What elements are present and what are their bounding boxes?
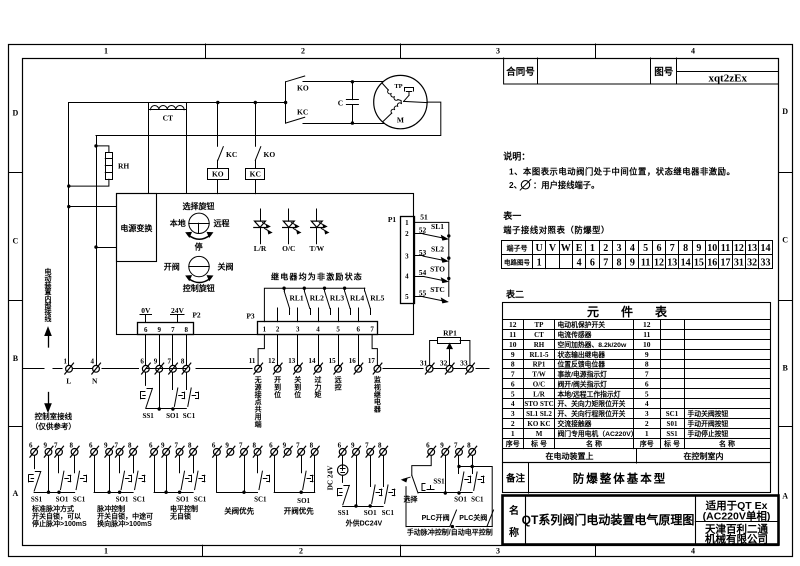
svg-text:8: 8 — [511, 360, 515, 369]
svg-text:11: 11 — [643, 330, 650, 339]
svg-text:停止脉冲>100mS: 停止脉冲>100mS — [32, 519, 87, 528]
svg-text:表一: 表一 — [502, 210, 521, 221]
svg-text:7: 7 — [365, 441, 369, 449]
svg-text:本地/远程工作指示灯: 本地/远程工作指示灯 — [558, 389, 621, 398]
svg-text:电源变换: 电源变换 — [120, 223, 153, 233]
svg-text:防爆整体基本型: 防爆整体基本型 — [573, 472, 668, 486]
svg-text:6: 6 — [338, 441, 342, 449]
svg-text:(AC220V单相): (AC220V单相) — [703, 510, 771, 523]
svg-text:13: 13 — [288, 357, 296, 365]
svg-text:7: 7 — [167, 358, 171, 366]
svg-text:名 称: 名 称 — [719, 439, 735, 448]
svg-text:SO1: SO1 — [297, 497, 310, 505]
svg-text:TP: TP — [394, 83, 402, 90]
svg-text:3: 3 — [496, 47, 500, 56]
svg-text:6: 6 — [149, 441, 153, 449]
svg-text:TP: TP — [535, 321, 545, 329]
svg-text:表二: 表二 — [505, 289, 524, 300]
svg-text:4: 4 — [316, 325, 320, 333]
svg-text:9: 9 — [696, 243, 701, 254]
svg-text:SO1: SO1 — [364, 509, 377, 517]
svg-text:：用户接线端子。: ：用户接线端子。 — [533, 180, 599, 190]
svg-text:6: 6 — [645, 379, 649, 388]
svg-text:过力矩: 过力矩 — [315, 375, 322, 399]
svg-text:KC: KC — [226, 150, 237, 159]
svg-text:合同号: 合同号 — [506, 66, 535, 78]
svg-text:9: 9 — [157, 326, 161, 334]
svg-text:8: 8 — [70, 441, 74, 449]
svg-text:10: 10 — [509, 340, 517, 349]
svg-text:13: 13 — [747, 243, 757, 254]
svg-text:3: 3 — [405, 252, 409, 260]
svg-text:3: 3 — [496, 547, 500, 556]
svg-text:8: 8 — [128, 441, 132, 449]
svg-text:标 号: 标 号 — [530, 439, 547, 448]
svg-text:SC1: SC1 — [133, 495, 146, 503]
svg-text:4: 4 — [630, 243, 635, 254]
svg-text:L/R: L/R — [533, 390, 546, 398]
svg-text:机械有限公司: 机械有限公司 — [705, 533, 768, 546]
svg-text:1: 1 — [64, 358, 68, 366]
svg-text:xqt2zEx: xqt2zEx — [708, 73, 747, 85]
svg-text:SS1: SS1 — [433, 477, 445, 485]
svg-text:继电器均为非激励状态: 继电器均为非激励状态 — [271, 271, 363, 281]
svg-text:关阀: 关阀 — [218, 262, 234, 272]
svg-text:14: 14 — [760, 243, 770, 254]
svg-text:8: 8 — [181, 358, 185, 366]
svg-text:33: 33 — [460, 358, 468, 367]
svg-text:7: 7 — [670, 243, 675, 254]
svg-text:3: 3 — [617, 243, 622, 254]
svg-text:7: 7 — [175, 441, 179, 449]
svg-text:9: 9 — [43, 441, 47, 449]
svg-text:RP1: RP1 — [533, 361, 546, 369]
svg-text:8: 8 — [645, 360, 649, 369]
svg-text:3: 3 — [645, 409, 649, 418]
svg-text:SS1: SS1 — [31, 495, 43, 503]
svg-text:0V: 0V — [141, 306, 151, 315]
svg-text:远控: 远控 — [335, 376, 343, 391]
svg-text:4: 4 — [691, 47, 695, 56]
svg-text:O/C: O/C — [282, 244, 295, 253]
svg-text:7: 7 — [296, 441, 300, 449]
svg-text:P3: P3 — [246, 311, 255, 320]
svg-text:换向脉冲>100mS: 换向脉冲>100mS — [97, 519, 152, 528]
svg-text:7: 7 — [603, 257, 608, 268]
svg-text:元件表: 元件表 — [587, 304, 689, 319]
svg-text:控制室接线: 控制室接线 — [35, 411, 73, 421]
svg-text:5: 5 — [643, 243, 648, 254]
svg-text:7: 7 — [645, 370, 649, 379]
svg-text:在控制室内: 在控制室内 — [684, 451, 724, 461]
svg-text:8: 8 — [185, 326, 189, 334]
svg-text:9: 9 — [351, 441, 355, 449]
svg-text:1: 1 — [511, 429, 515, 438]
svg-text:V: V — [549, 243, 557, 254]
svg-text:12: 12 — [734, 243, 744, 254]
svg-text:称: 称 — [509, 526, 519, 539]
svg-text:16: 16 — [349, 357, 357, 365]
svg-text:2、: 2、 — [509, 180, 522, 190]
svg-text:24V: 24V — [171, 306, 185, 315]
svg-text:名 称: 名 称 — [586, 439, 602, 448]
svg-text:3: 3 — [511, 409, 515, 418]
svg-text:开关自锁，中途可: 开关自锁，中途可 — [97, 512, 153, 521]
svg-text:9: 9 — [104, 441, 108, 449]
svg-text:6: 6 — [269, 441, 273, 449]
svg-text:SC1: SC1 — [183, 412, 196, 420]
svg-text:6: 6 — [212, 441, 216, 449]
svg-text:状态输出继电器: 状态输出继电器 — [558, 350, 606, 359]
svg-text:标 号: 标 号 — [663, 439, 680, 448]
svg-text:STO STC: STO STC — [524, 400, 553, 408]
svg-text:脉冲控制: 脉冲控制 — [96, 504, 125, 513]
svg-text:RL4: RL4 — [350, 293, 364, 302]
svg-text:开、关向力矩限位开关: 开、关向力矩限位开关 — [558, 399, 626, 408]
svg-text:交流接触器: 交流接触器 — [558, 419, 592, 428]
svg-text:6: 6 — [89, 441, 93, 449]
svg-text:P2: P2 — [192, 311, 201, 320]
svg-text:标准脉冲方式: 标准脉冲方式 — [31, 504, 74, 513]
svg-text:8: 8 — [467, 441, 471, 449]
svg-text:SC1: SC1 — [666, 410, 679, 418]
svg-text:S01: S01 — [667, 420, 678, 428]
svg-text:9: 9 — [161, 441, 165, 449]
svg-text:7: 7 — [239, 441, 243, 449]
svg-text:PLC关阀: PLC关阀 — [459, 513, 487, 522]
svg-text:9: 9 — [225, 441, 229, 449]
svg-text:开到位: 开到位 — [274, 376, 281, 399]
svg-text:RL2: RL2 — [310, 293, 324, 302]
svg-text:备注: 备注 — [505, 473, 526, 485]
svg-text:17: 17 — [368, 357, 376, 365]
svg-text:8: 8 — [188, 441, 192, 449]
svg-text:U: U — [536, 243, 543, 254]
svg-text:7: 7 — [115, 441, 119, 449]
svg-text:SL1: SL1 — [431, 222, 444, 231]
svg-text:端子接线对照表（防爆型）: 端子接线对照表（防爆型） — [503, 225, 610, 235]
svg-text:SL2: SL2 — [431, 244, 444, 253]
svg-text:1: 1 — [537, 257, 542, 268]
svg-text:4: 4 — [405, 273, 409, 281]
svg-text:关到位: 关到位 — [294, 375, 301, 399]
svg-text:D: D — [13, 109, 19, 118]
svg-text:名: 名 — [509, 504, 519, 517]
svg-text:L: L — [66, 377, 71, 386]
svg-text:53: 53 — [419, 248, 427, 257]
svg-text:7: 7 — [171, 326, 175, 334]
svg-text:T/W: T/W — [532, 371, 546, 379]
svg-text:在电动装置上: 在电动装置上 — [546, 451, 594, 461]
svg-text:B: B — [13, 354, 19, 363]
svg-text:M: M — [397, 116, 404, 125]
svg-text:12: 12 — [654, 257, 664, 268]
svg-text:KC: KC — [297, 108, 308, 117]
svg-text:11: 11 — [641, 257, 650, 268]
svg-text:SC1: SC1 — [73, 495, 86, 503]
svg-text:A: A — [782, 492, 788, 501]
svg-text:电平控制: 电平控制 — [170, 504, 198, 513]
svg-text:B: B — [783, 364, 789, 373]
svg-text:17: 17 — [721, 257, 731, 268]
svg-text:10: 10 — [643, 340, 651, 349]
svg-text:SO1: SO1 — [166, 412, 179, 420]
svg-text:N: N — [92, 377, 98, 386]
svg-text:RL1-5: RL1-5 — [529, 351, 549, 359]
svg-text:CT: CT — [163, 114, 173, 123]
svg-text:C: C — [13, 237, 19, 246]
svg-text:31: 31 — [734, 257, 744, 268]
svg-text:4: 4 — [91, 358, 95, 366]
svg-text:RP1: RP1 — [443, 329, 457, 338]
svg-text:CT: CT — [534, 331, 544, 339]
svg-text:KO: KO — [212, 170, 224, 179]
svg-text:11: 11 — [249, 357, 256, 365]
svg-text:KO: KO — [297, 84, 309, 93]
svg-text:5: 5 — [645, 389, 649, 398]
svg-text:55: 55 — [419, 288, 427, 297]
svg-text:C: C — [338, 99, 343, 108]
svg-text:4: 4 — [511, 399, 515, 408]
svg-text:P1: P1 — [388, 215, 397, 224]
svg-text:4: 4 — [577, 257, 582, 268]
svg-text:13: 13 — [667, 257, 677, 268]
svg-text:2: 2 — [299, 547, 303, 556]
svg-text:1: 1 — [405, 219, 409, 227]
svg-text:KO: KO — [264, 150, 276, 159]
svg-text:1: 1 — [263, 325, 267, 333]
svg-text:2: 2 — [511, 419, 515, 428]
svg-text:32: 32 — [747, 257, 757, 268]
svg-text:事故/电源指示灯: 事故/电源指示灯 — [558, 370, 608, 379]
svg-text:STC: STC — [430, 285, 445, 294]
svg-text:6: 6 — [140, 358, 144, 366]
svg-text:5: 5 — [511, 389, 515, 398]
svg-text:SO1: SO1 — [454, 495, 467, 503]
svg-text:无源接点共用端: 无源接点共用端 — [254, 376, 262, 428]
svg-text:手动开阀按钮: 手动开阀按钮 — [688, 419, 729, 428]
svg-text:8: 8 — [310, 441, 314, 449]
svg-text:L/R: L/R — [254, 244, 267, 253]
svg-text:6: 6 — [590, 257, 595, 268]
svg-text:6: 6 — [29, 441, 33, 449]
svg-text:O/C: O/C — [533, 380, 545, 388]
svg-text:手动关阀按钮: 手动关阀按钮 — [688, 409, 729, 418]
svg-text:8: 8 — [683, 243, 688, 254]
svg-text:54: 54 — [419, 268, 427, 277]
svg-text:11: 11 — [509, 330, 516, 339]
svg-text:12: 12 — [509, 320, 517, 329]
svg-text:电动机保护开关: 电动机保护开关 — [558, 320, 606, 329]
svg-text:11: 11 — [721, 243, 730, 254]
svg-text:序号: 序号 — [639, 439, 654, 448]
svg-text:2: 2 — [405, 230, 409, 238]
svg-text:关阀优先: 关阀优先 — [224, 506, 254, 516]
svg-text:RL5: RL5 — [370, 293, 384, 302]
svg-text:6: 6 — [511, 379, 515, 388]
svg-text:W: W — [561, 243, 571, 254]
svg-text:7: 7 — [511, 370, 515, 379]
svg-text:6: 6 — [357, 325, 361, 333]
svg-text:SC1: SC1 — [254, 495, 267, 503]
svg-text:RL1: RL1 — [290, 293, 304, 302]
svg-text:10: 10 — [707, 243, 717, 254]
svg-text:6: 6 — [426, 441, 430, 449]
svg-text:51: 51 — [420, 213, 428, 222]
svg-text:5: 5 — [336, 325, 340, 333]
svg-text:14: 14 — [681, 257, 691, 268]
svg-text:1: 1 — [104, 547, 108, 556]
svg-text:2: 2 — [301, 47, 305, 56]
svg-text:开阀优先: 开阀优先 — [284, 506, 314, 516]
svg-text:2: 2 — [645, 419, 649, 428]
svg-text:8: 8 — [252, 441, 256, 449]
svg-text:T/W: T/W — [310, 244, 325, 253]
svg-text:SL1 SL2: SL1 SL2 — [526, 410, 552, 418]
svg-text:电路图号: 电路图号 — [504, 258, 531, 267]
svg-text:15: 15 — [329, 357, 337, 365]
svg-text:开阀: 开阀 — [164, 262, 180, 272]
svg-text:SO1: SO1 — [176, 495, 189, 503]
svg-text:9: 9 — [283, 441, 287, 449]
svg-text:7: 7 — [370, 325, 374, 333]
svg-text:KC: KC — [250, 170, 261, 179]
svg-text:16: 16 — [707, 257, 717, 268]
svg-text:外供DC24V: 外供DC24V — [346, 519, 383, 528]
svg-text:M: M — [536, 430, 543, 438]
svg-text:2: 2 — [276, 325, 280, 333]
svg-text:9: 9 — [440, 441, 444, 449]
svg-text:选择旋钮: 选择旋钮 — [183, 201, 215, 211]
svg-text:9: 9 — [154, 358, 158, 366]
svg-text:6: 6 — [656, 243, 661, 254]
svg-text:1: 1 — [645, 429, 649, 438]
svg-text:STO: STO — [430, 265, 445, 274]
svg-text:开关自锁，可以: 开关自锁，可以 — [32, 512, 81, 521]
svg-text:SS1: SS1 — [338, 509, 350, 517]
svg-text:1: 1 — [104, 47, 108, 56]
svg-text:8: 8 — [378, 441, 382, 449]
svg-text:31: 31 — [420, 358, 428, 367]
svg-text:手动停止按钮: 手动停止按钮 — [688, 429, 729, 438]
svg-text:9: 9 — [511, 350, 515, 359]
svg-text:15: 15 — [694, 257, 704, 268]
svg-text:本地: 本地 — [169, 218, 186, 228]
svg-text:32: 32 — [440, 358, 448, 367]
svg-text:KO KC: KO KC — [527, 420, 550, 428]
svg-text:说明：: 说明： — [503, 151, 530, 162]
svg-text:SS1: SS1 — [666, 430, 678, 438]
svg-text:D: D — [782, 107, 788, 116]
svg-text:监视继电器: 监视继电器 — [373, 375, 382, 414]
svg-text:阀开/阀关指示灯: 阀开/阀关指示灯 — [558, 379, 608, 388]
svg-text:SC1: SC1 — [382, 509, 395, 517]
svg-text:9: 9 — [630, 257, 635, 268]
svg-text:PLC开阀: PLC开阀 — [422, 513, 450, 522]
svg-text:端子号: 端子号 — [507, 244, 528, 253]
svg-text:停: 停 — [195, 242, 203, 252]
svg-text:电动装置内部接线: 电动装置内部接线 — [44, 267, 52, 323]
svg-text:RL3: RL3 — [330, 293, 344, 302]
svg-text:空间加热器、8.2k/20w: 空间加热器、8.2k/20w — [558, 340, 627, 349]
svg-text:1: 1 — [590, 243, 595, 254]
svg-text:4: 4 — [645, 399, 649, 408]
svg-text:序号: 序号 — [505, 439, 520, 448]
svg-text:5: 5 — [405, 293, 409, 301]
svg-text:位置反馈电位器: 位置反馈电位器 — [558, 360, 606, 369]
svg-text:远程: 远程 — [214, 218, 230, 228]
svg-text:14: 14 — [309, 357, 317, 365]
svg-text:无自锁: 无自锁 — [169, 512, 191, 521]
svg-text:SO1: SO1 — [116, 495, 129, 503]
svg-text:4: 4 — [691, 547, 695, 556]
svg-text:手动脉冲控制/自动电平控制: 手动脉冲控制/自动电平控制 — [407, 527, 493, 536]
svg-text:E: E — [576, 243, 583, 254]
svg-text:RH: RH — [118, 162, 129, 171]
svg-text:SO1: SO1 — [56, 495, 69, 503]
svg-text:电流传感器: 电流传感器 — [558, 330, 592, 339]
svg-text:52: 52 — [419, 226, 427, 235]
svg-text:7: 7 — [54, 441, 58, 449]
svg-text:9: 9 — [645, 350, 649, 359]
svg-text:QT系列阀门电动装置电气原理图: QT系列阀门电动装置电气原理图 — [522, 512, 695, 527]
svg-text:DC 24V: DC 24V — [326, 465, 334, 490]
svg-text:6: 6 — [144, 326, 148, 334]
svg-text:开、关向行程限位开关: 开、关向行程限位开关 — [558, 409, 626, 418]
svg-text:2: 2 — [603, 243, 608, 254]
svg-text:A: A — [13, 489, 19, 498]
svg-text:33: 33 — [760, 257, 770, 268]
svg-text:3: 3 — [296, 325, 300, 333]
svg-text:C: C — [782, 236, 788, 245]
svg-text:12: 12 — [268, 357, 276, 365]
svg-text:8: 8 — [617, 257, 622, 268]
svg-text:1、本图表示电动阀门处于中间位置，状态继电器非激励。: 1、本图表示电动阀门处于中间位置，状态继电器非激励。 — [509, 167, 735, 177]
svg-text:SS1: SS1 — [142, 412, 154, 420]
svg-text:图号: 图号 — [654, 67, 674, 78]
svg-text:12: 12 — [643, 320, 651, 329]
svg-text:（仅供参考）: （仅供参考） — [31, 421, 76, 431]
svg-text:控制旋钮: 控制旋钮 — [183, 283, 215, 293]
svg-text:SC1: SC1 — [471, 495, 484, 503]
svg-text:RH: RH — [534, 341, 545, 349]
svg-text:7: 7 — [454, 441, 458, 449]
svg-text:SC1: SC1 — [194, 495, 207, 503]
svg-text:阀门专用电机（AC220V）: 阀门专用电机（AC220V） — [558, 429, 638, 438]
